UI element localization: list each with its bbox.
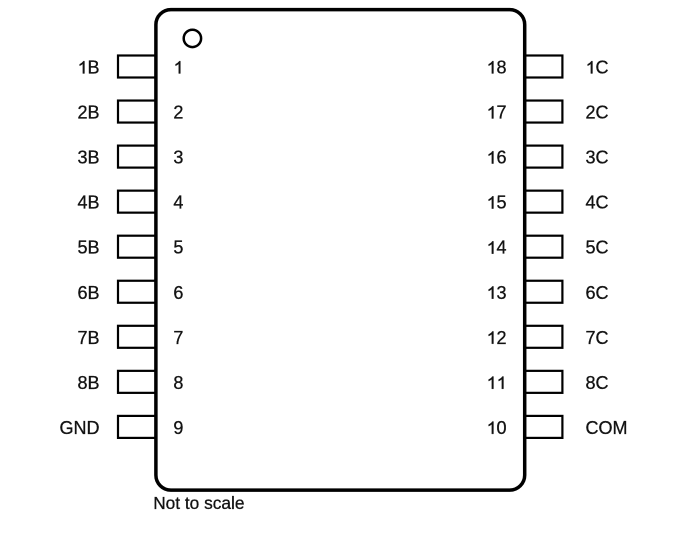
svg-text:3: 3 xyxy=(173,148,183,168)
svg-text:Not to scale: Not to scale xyxy=(153,493,244,513)
svg-text:5: 5 xyxy=(496,193,506,213)
svg-text:8B: 8B xyxy=(77,373,99,393)
svg-text:0: 0 xyxy=(496,418,506,438)
svg-text:COM: COM xyxy=(586,418,628,438)
svg-text:GND: GND xyxy=(60,418,100,438)
svg-text:3: 3 xyxy=(496,283,506,303)
svg-text:7B: 7B xyxy=(77,328,99,348)
svg-text:5: 5 xyxy=(173,238,183,258)
svg-text:8: 8 xyxy=(173,373,183,393)
svg-text:5B: 5B xyxy=(77,238,99,258)
svg-text:4B: 4B xyxy=(77,193,99,213)
svg-text:C: C xyxy=(596,58,609,78)
svg-text:6: 6 xyxy=(173,283,183,303)
svg-text:9: 9 xyxy=(173,418,183,438)
svg-text:B: B xyxy=(87,58,99,78)
svg-text:6: 6 xyxy=(496,148,506,168)
svg-text:7C: 7C xyxy=(586,328,609,348)
svg-text:8: 8 xyxy=(496,58,506,78)
svg-text:7: 7 xyxy=(496,103,506,123)
svg-text:4C: 4C xyxy=(586,193,609,213)
svg-text:6C: 6C xyxy=(586,283,609,303)
svg-text:2C: 2C xyxy=(586,103,609,123)
svg-text:3B: 3B xyxy=(77,148,99,168)
svg-text:3C: 3C xyxy=(586,148,609,168)
svg-text:2: 2 xyxy=(173,103,183,123)
svg-text:4: 4 xyxy=(173,193,183,213)
svg-text:6B: 6B xyxy=(77,283,99,303)
svg-text:7: 7 xyxy=(173,328,183,348)
svg-text:4: 4 xyxy=(496,238,506,258)
svg-text:8C: 8C xyxy=(586,373,609,393)
svg-text:2: 2 xyxy=(496,328,506,348)
svg-text:5C: 5C xyxy=(586,238,609,258)
svg-text:2B: 2B xyxy=(77,103,99,123)
